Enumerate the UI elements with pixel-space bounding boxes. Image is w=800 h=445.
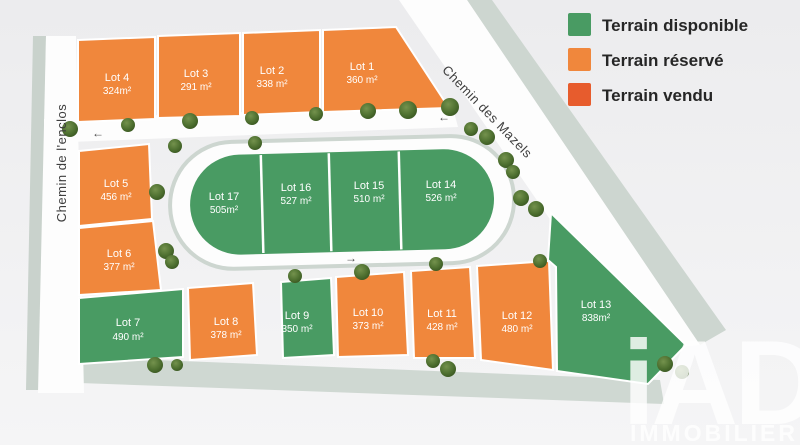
brand-watermark-subtitle: IMMOBILIER bbox=[630, 420, 798, 445]
tree-icon bbox=[464, 122, 478, 136]
lot-7-area: 490 m² bbox=[112, 332, 144, 343]
lot-2-area: 338 m² bbox=[256, 79, 288, 90]
tree-icon bbox=[479, 129, 495, 145]
tree-icon bbox=[288, 269, 302, 283]
lot-15-label: Lot 15 bbox=[354, 180, 385, 192]
lot-17-area: 505m² bbox=[210, 205, 239, 216]
legend-swatch-sold bbox=[568, 83, 591, 106]
lot-15-area: 510 m² bbox=[353, 194, 385, 205]
lot-8-area: 378 m² bbox=[210, 330, 242, 341]
lot-7-label: Lot 7 bbox=[116, 317, 140, 329]
lot-5-label: Lot 5 bbox=[104, 178, 128, 190]
tree-icon bbox=[121, 118, 135, 132]
lot-13-area: 838m² bbox=[582, 313, 611, 324]
tree-icon bbox=[440, 361, 456, 377]
lot-5-area: 456 m² bbox=[100, 192, 132, 203]
tree-icon bbox=[245, 111, 259, 125]
tree-icon bbox=[147, 357, 163, 373]
lot-8-label: Lot 8 bbox=[214, 316, 238, 328]
lot-2-label: Lot 2 bbox=[260, 65, 284, 77]
lot-4-area: 324m² bbox=[103, 86, 132, 97]
lot-1-area: 360 m² bbox=[346, 75, 378, 86]
tree-icon bbox=[528, 201, 544, 217]
lot-10-area: 373 m² bbox=[352, 321, 384, 332]
lot-3-area: 291 m² bbox=[180, 82, 212, 93]
lot-6-label: Lot 6 bbox=[107, 248, 131, 260]
arrow-left-icon: ← bbox=[438, 110, 450, 124]
lot-3-label: Lot 3 bbox=[184, 68, 208, 80]
lot-10-label: Lot 10 bbox=[353, 307, 384, 319]
lot-14-area: 526 m² bbox=[425, 193, 457, 204]
lot-17-label: Lot 17 bbox=[209, 191, 240, 203]
tree-icon bbox=[171, 359, 183, 371]
arrow-right-icon: → bbox=[345, 251, 357, 265]
lot-16-label: Lot 16 bbox=[281, 182, 312, 194]
legend-label-sold: Terrain vendu bbox=[602, 86, 713, 105]
site-plan: Lot 1360 m² Lot 2338 m² Lot 3291 m² Lot … bbox=[0, 0, 800, 445]
lot-9-area: 350 m² bbox=[281, 324, 313, 335]
tree-icon bbox=[248, 136, 262, 150]
tree-icon bbox=[360, 103, 376, 119]
lot-12-label: Lot 12 bbox=[502, 310, 533, 322]
legend-label-available: Terrain disponible bbox=[602, 16, 748, 35]
tree-icon bbox=[429, 257, 443, 271]
lot-1-label: Lot 1 bbox=[350, 61, 374, 73]
lot-11-label: Lot 11 bbox=[427, 308, 457, 320]
tree-icon bbox=[426, 354, 440, 368]
lot-13-label: Lot 13 bbox=[581, 299, 612, 311]
lot-9-label: Lot 9 bbox=[285, 310, 309, 322]
tree-icon bbox=[309, 107, 323, 121]
lot-4-label: Lot 4 bbox=[105, 72, 129, 84]
tree-icon bbox=[513, 190, 529, 206]
lot-14-label: Lot 14 bbox=[426, 179, 457, 191]
tree-icon bbox=[533, 254, 547, 268]
tree-icon bbox=[354, 264, 370, 280]
legend-label-reserved: Terrain réservé bbox=[602, 51, 724, 70]
lot-16-area: 527 m² bbox=[280, 196, 312, 207]
tree-icon bbox=[165, 255, 179, 269]
legend-swatch-reserved bbox=[568, 48, 591, 71]
brand-watermark: iAD IMMOBILIER bbox=[622, 316, 800, 445]
lot-6-area: 377 m² bbox=[103, 262, 135, 273]
lot-11-area: 428 m² bbox=[426, 322, 458, 333]
left-road-label: Chemin de l'enclos bbox=[54, 104, 69, 222]
lot-12-area: 480 m² bbox=[501, 324, 533, 335]
tree-icon bbox=[149, 184, 165, 200]
tree-icon bbox=[506, 165, 520, 179]
tree-icon bbox=[168, 139, 182, 153]
legend-swatch-available bbox=[568, 13, 591, 36]
tree-icon bbox=[399, 101, 417, 119]
arrow-left-icon: ← bbox=[92, 126, 104, 140]
tree-icon bbox=[182, 113, 198, 129]
